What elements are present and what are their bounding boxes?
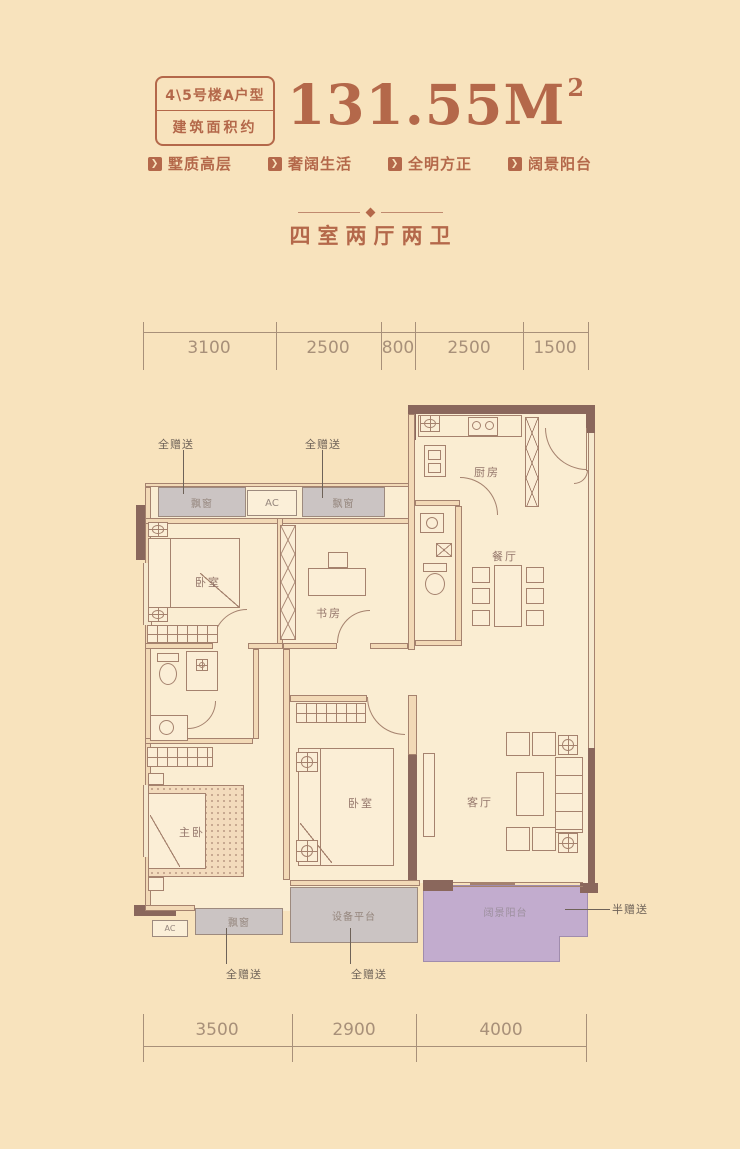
armchair: [532, 732, 556, 756]
area-value: 131.55M2: [287, 76, 585, 132]
nightstand: [296, 840, 318, 862]
nightstand: [148, 773, 164, 785]
wall-segment: [423, 880, 453, 891]
dining-chair: [472, 588, 490, 604]
dimension-line: [143, 1046, 586, 1047]
room-label-dining: 餐厅: [492, 548, 518, 564]
nightstand: [148, 607, 168, 622]
dining-chair: [526, 610, 544, 626]
nightstand: [148, 522, 168, 537]
wall-segment: [588, 748, 595, 883]
dimension-tick: [143, 1014, 144, 1062]
dining-chair: [526, 588, 544, 604]
wall-segment: [145, 483, 410, 487]
arrow-right-icon: ❯: [148, 157, 162, 171]
desk: [308, 568, 366, 596]
annotation-leader: [183, 450, 184, 494]
annotation-leader: [565, 909, 610, 910]
annotation-full-gift: 全赠送: [351, 966, 387, 982]
dimension-value: 1500: [533, 338, 576, 358]
arrow-right-icon: ❯: [508, 157, 522, 171]
dimension-line: [143, 332, 588, 333]
nightstand: [296, 752, 318, 772]
wall-segment: [415, 640, 462, 646]
dimension-tick: [143, 322, 144, 370]
annotation-leader: [350, 928, 351, 964]
ac-label: AC: [265, 498, 279, 509]
wall-segment: [408, 753, 417, 883]
dimension-value: 2900: [332, 1020, 375, 1040]
balcony: [423, 936, 560, 962]
burner: [485, 421, 494, 430]
section-divider: [0, 209, 740, 216]
dimension-tick: [276, 322, 277, 370]
sink-basin: [428, 450, 441, 460]
bay-window-label: 飘窗: [333, 495, 355, 510]
ac-label: AC: [165, 924, 176, 933]
toilet-bowl: [159, 663, 177, 685]
sofa: [555, 757, 583, 833]
wardrobe: [296, 703, 366, 723]
floorplan: 飘窗 AC 飘窗 飘窗 AC 设备平台 阔景阳台: [140, 395, 605, 1015]
wardrobe: [147, 625, 218, 643]
bay-window-label: 飘窗: [228, 914, 250, 929]
dimension-tick: [292, 1014, 293, 1062]
dining-chair: [526, 567, 544, 583]
header: 4\5号楼A户型 建筑面积约 131.55M2: [0, 76, 740, 146]
balcony: 阔景阳台: [423, 885, 588, 937]
ac-unit: AC: [152, 920, 188, 937]
dimension-tick: [588, 322, 589, 370]
shower: [186, 651, 218, 691]
washbasin-bowl: [426, 517, 438, 529]
room-label-living: 客厅: [467, 794, 493, 810]
entry-door-leaf: [586, 428, 587, 471]
slider-door-leaf: [470, 883, 515, 885]
divider-line: [298, 212, 360, 213]
feature-tag-label: 奢阔生活: [288, 153, 352, 174]
armchair: [532, 827, 556, 851]
feature-tag-label: 阔景阳台: [528, 153, 592, 174]
wall-segment: [408, 414, 415, 650]
annotation-leader: [322, 450, 323, 498]
dining-chair: [472, 610, 490, 626]
dimension-value: 800: [382, 338, 414, 358]
equipment-label: 设备平台: [332, 908, 376, 923]
layout-subtitle: 四室两厅两卫: [0, 220, 740, 250]
toilet-bowl: [425, 573, 445, 595]
arrow-right-icon: ❯: [388, 157, 402, 171]
annotation-half-gift: 半赠送: [612, 901, 648, 917]
chair: [328, 552, 348, 568]
title-box: 4\5号楼A户型 建筑面积约: [155, 76, 275, 146]
building-unit-label: 4\5号楼A户型: [157, 78, 273, 111]
kitchen-appliance: [420, 415, 440, 432]
bay-window-label: 飘窗: [191, 495, 213, 510]
wall-segment: [455, 506, 462, 646]
annotation-full-gift: 全赠送: [226, 966, 262, 982]
wall-segment: [408, 405, 595, 414]
dimension-tick: [416, 1014, 417, 1062]
window: [588, 433, 595, 748]
feature-tag: ❯阔景阳台: [508, 153, 592, 174]
divider-line: [381, 212, 443, 213]
area-superscript: 2: [567, 73, 585, 102]
wall-segment: [145, 905, 195, 911]
dimension-value: 2500: [306, 338, 349, 358]
wall-segment: [253, 649, 259, 739]
area-number: 131.55M: [287, 72, 565, 137]
feature-tag: ❯墅质高层: [148, 153, 232, 174]
room-label-bedroom2: 卧室: [348, 795, 374, 811]
dimension-value: 2500: [447, 338, 490, 358]
feature-tags: ❯墅质高层 ❯奢阔生活 ❯全明方正 ❯阔景阳台: [0, 153, 740, 174]
wall-segment: [145, 643, 213, 649]
room-label-study: 书房: [316, 605, 342, 621]
toilet-tank: [157, 653, 179, 662]
vanity-basin: [159, 720, 174, 735]
wall-segment: [290, 880, 420, 886]
room-label-master: 主卧: [179, 824, 205, 840]
wall-segment: [586, 405, 595, 433]
wall-segment: [408, 695, 417, 755]
annotation-full-gift: 全赠送: [158, 436, 194, 452]
shower-head: [196, 659, 208, 671]
shaft: [436, 543, 452, 557]
bay-window: 飘窗: [158, 487, 246, 517]
closet: [280, 525, 296, 640]
toilet-tank: [423, 563, 447, 572]
dimension-tick: [523, 322, 524, 370]
tv-stand: [423, 753, 435, 837]
side-table: [558, 735, 578, 755]
slider-door: [453, 886, 583, 887]
sink-basin: [428, 463, 441, 473]
room-label-bedroom1: 卧室: [195, 574, 221, 590]
ac-unit: AC: [247, 490, 297, 516]
dimension-tick: [415, 322, 416, 370]
equipment-platform: 设备平台: [290, 887, 418, 943]
burner: [472, 421, 481, 430]
area-caption: 建筑面积约: [157, 111, 273, 144]
dimension-value: 3100: [187, 338, 230, 358]
annotation-full-gift: 全赠送: [305, 436, 341, 452]
dining-chair: [472, 567, 490, 583]
wall-segment: [283, 649, 290, 880]
feature-tag: ❯全明方正: [388, 153, 472, 174]
wall-segment: [370, 643, 408, 649]
bed-pillow-line: [170, 538, 171, 608]
bay-window: 飘窗: [302, 487, 385, 517]
wall-segment: [283, 643, 337, 649]
arrow-right-icon: ❯: [268, 157, 282, 171]
room-label-kitchen: 厨房: [474, 464, 500, 480]
annotation-leader: [226, 928, 227, 964]
floorplan-page: 4\5号楼A户型 建筑面积约 131.55M2 ❯墅质高层 ❯奢阔生活 ❯全明方…: [0, 0, 740, 1149]
coffee-table: [516, 772, 544, 816]
wall-segment: [580, 883, 598, 893]
feature-tag: ❯奢阔生活: [268, 153, 352, 174]
feature-tag-label: 墅质高层: [168, 153, 232, 174]
balcony-label: 阔景阳台: [484, 904, 528, 919]
diamond-icon: [365, 208, 375, 218]
feature-tag-label: 全明方正: [408, 153, 472, 174]
wardrobe: [147, 747, 213, 767]
nightstand: [148, 877, 164, 891]
pantry-cabinet: [525, 417, 539, 507]
wall-segment: [290, 695, 367, 702]
armchair: [506, 827, 530, 851]
side-table: [558, 833, 578, 853]
dining-table: [494, 565, 522, 627]
armchair: [506, 732, 530, 756]
dimension-value: 3500: [195, 1020, 238, 1040]
dimension-tick: [586, 1014, 587, 1062]
bay-window: 飘窗: [195, 908, 283, 935]
bed-fold: [150, 815, 180, 867]
wall-segment: [415, 500, 460, 506]
dimension-value: 4000: [479, 1020, 522, 1040]
